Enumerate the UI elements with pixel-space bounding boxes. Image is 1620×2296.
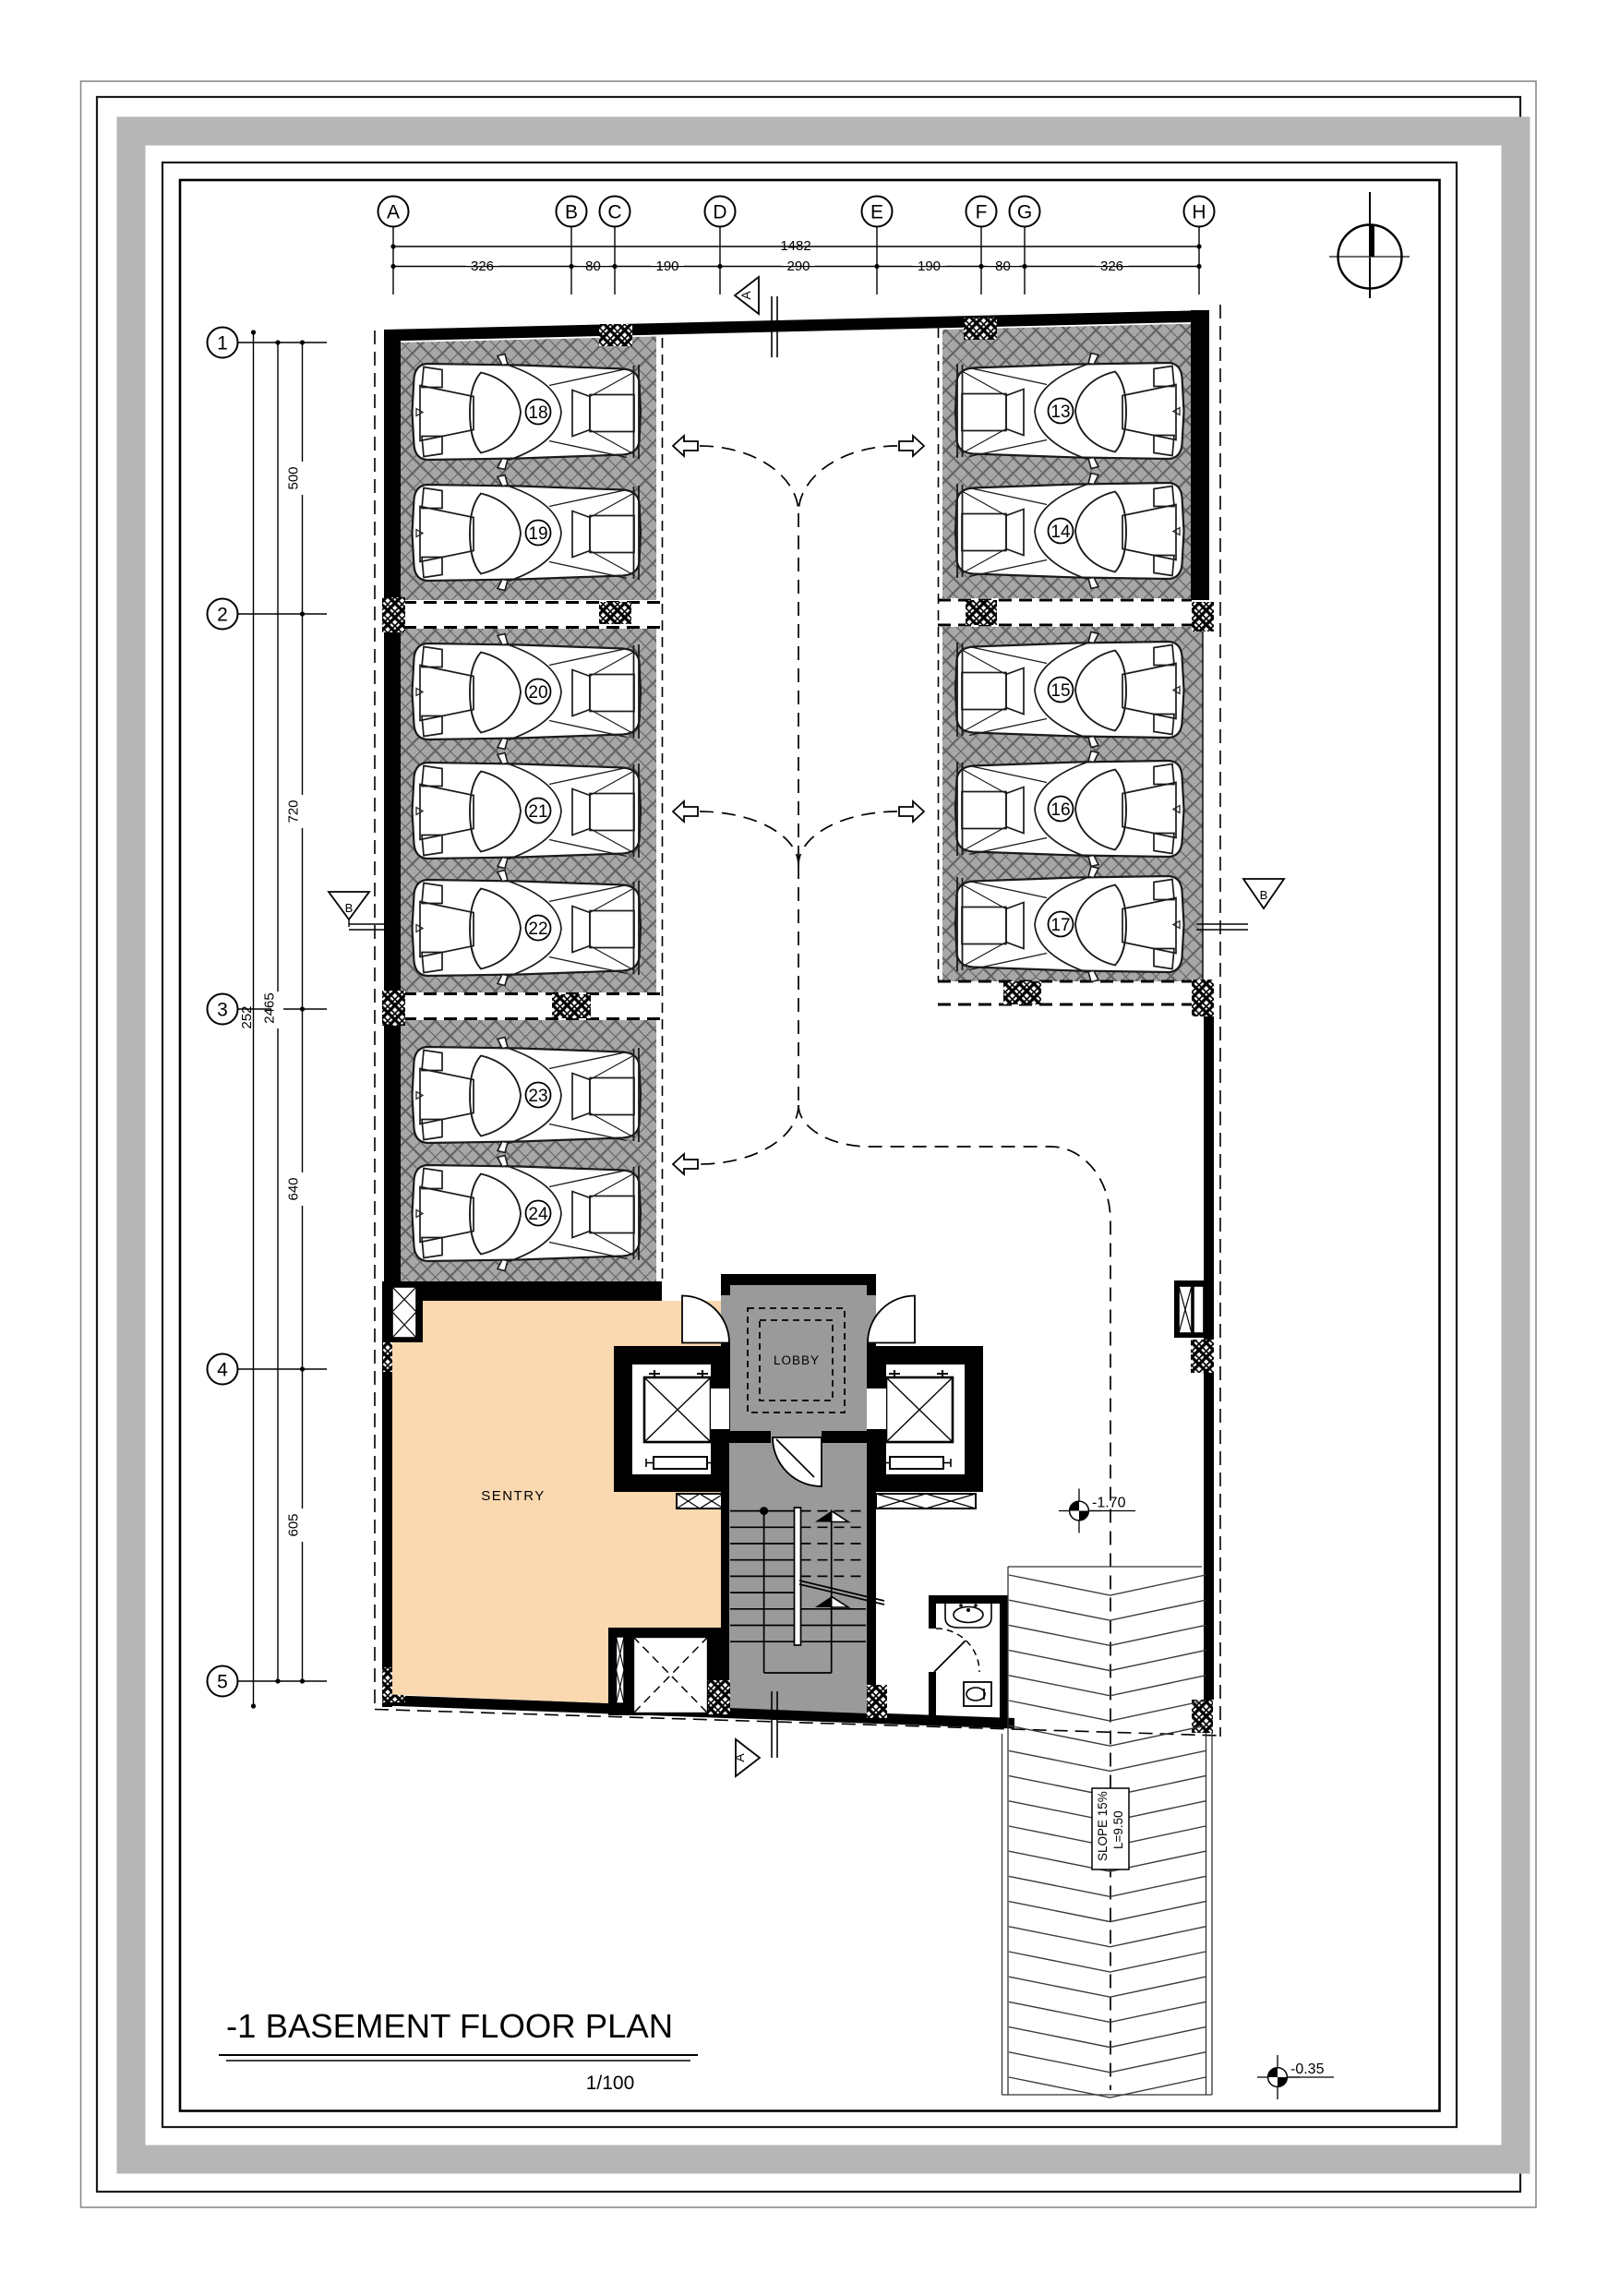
svg-text:18: 18 [528,403,547,423]
svg-text:23: 23 [528,1087,547,1106]
svg-text:L=9.50: L=9.50 [1111,1810,1125,1849]
svg-text:326: 326 [471,258,494,274]
svg-text:24: 24 [528,1205,548,1224]
svg-text:14: 14 [1050,523,1071,542]
svg-text:5: 5 [217,1672,228,1693]
svg-text:190: 190 [655,258,678,274]
svg-text:B: B [565,202,578,223]
svg-text:22: 22 [528,920,547,939]
svg-text:15: 15 [1050,681,1070,701]
svg-text:SENTRY: SENTRY [481,1488,546,1504]
svg-text:D: D [713,202,726,223]
svg-text:326: 326 [1100,258,1123,274]
svg-text:1: 1 [217,333,228,355]
svg-text:SLOPE 15%: SLOPE 15% [1096,1791,1110,1861]
svg-text:290: 290 [786,258,810,274]
svg-text:H: H [1192,202,1206,223]
svg-text:605: 605 [286,1513,302,1536]
svg-text:190: 190 [918,258,941,274]
svg-text:21: 21 [528,802,547,822]
svg-text:80: 80 [585,258,601,274]
svg-text:F: F [976,202,988,223]
svg-text:B: B [345,901,354,915]
svg-text:E: E [870,202,883,223]
svg-text:500: 500 [286,466,302,489]
svg-text:-1 BASEMENT FLOOR PLAN: -1 BASEMENT FLOOR PLAN [226,2007,673,2045]
svg-text:13: 13 [1050,403,1070,422]
svg-text:A: A [387,202,400,223]
svg-text:LOBBY: LOBBY [774,1353,820,1367]
svg-text:16: 16 [1050,800,1070,820]
svg-text:1482: 1482 [780,238,810,254]
svg-text:-0.35: -0.35 [1290,2062,1325,2077]
svg-text:252: 252 [239,1005,255,1028]
svg-text:2: 2 [217,605,228,626]
svg-text:A: A [732,1753,747,1762]
svg-text:17: 17 [1050,916,1070,935]
svg-text:3: 3 [217,1000,228,1021]
svg-text:2465: 2465 [262,992,278,1023]
svg-text:4: 4 [217,1360,228,1381]
svg-text:B: B [1260,888,1268,902]
svg-text:19: 19 [528,524,547,544]
svg-text:C: C [607,202,621,223]
svg-text:G: G [1017,202,1032,223]
svg-text:A: A [738,291,753,300]
svg-text:1/100: 1/100 [586,2073,635,2094]
svg-text:80: 80 [995,258,1011,274]
svg-text:-1.70: -1.70 [1092,1496,1126,1511]
svg-text:640: 640 [286,1177,302,1200]
svg-text:720: 720 [286,799,302,823]
svg-text:20: 20 [528,683,547,703]
